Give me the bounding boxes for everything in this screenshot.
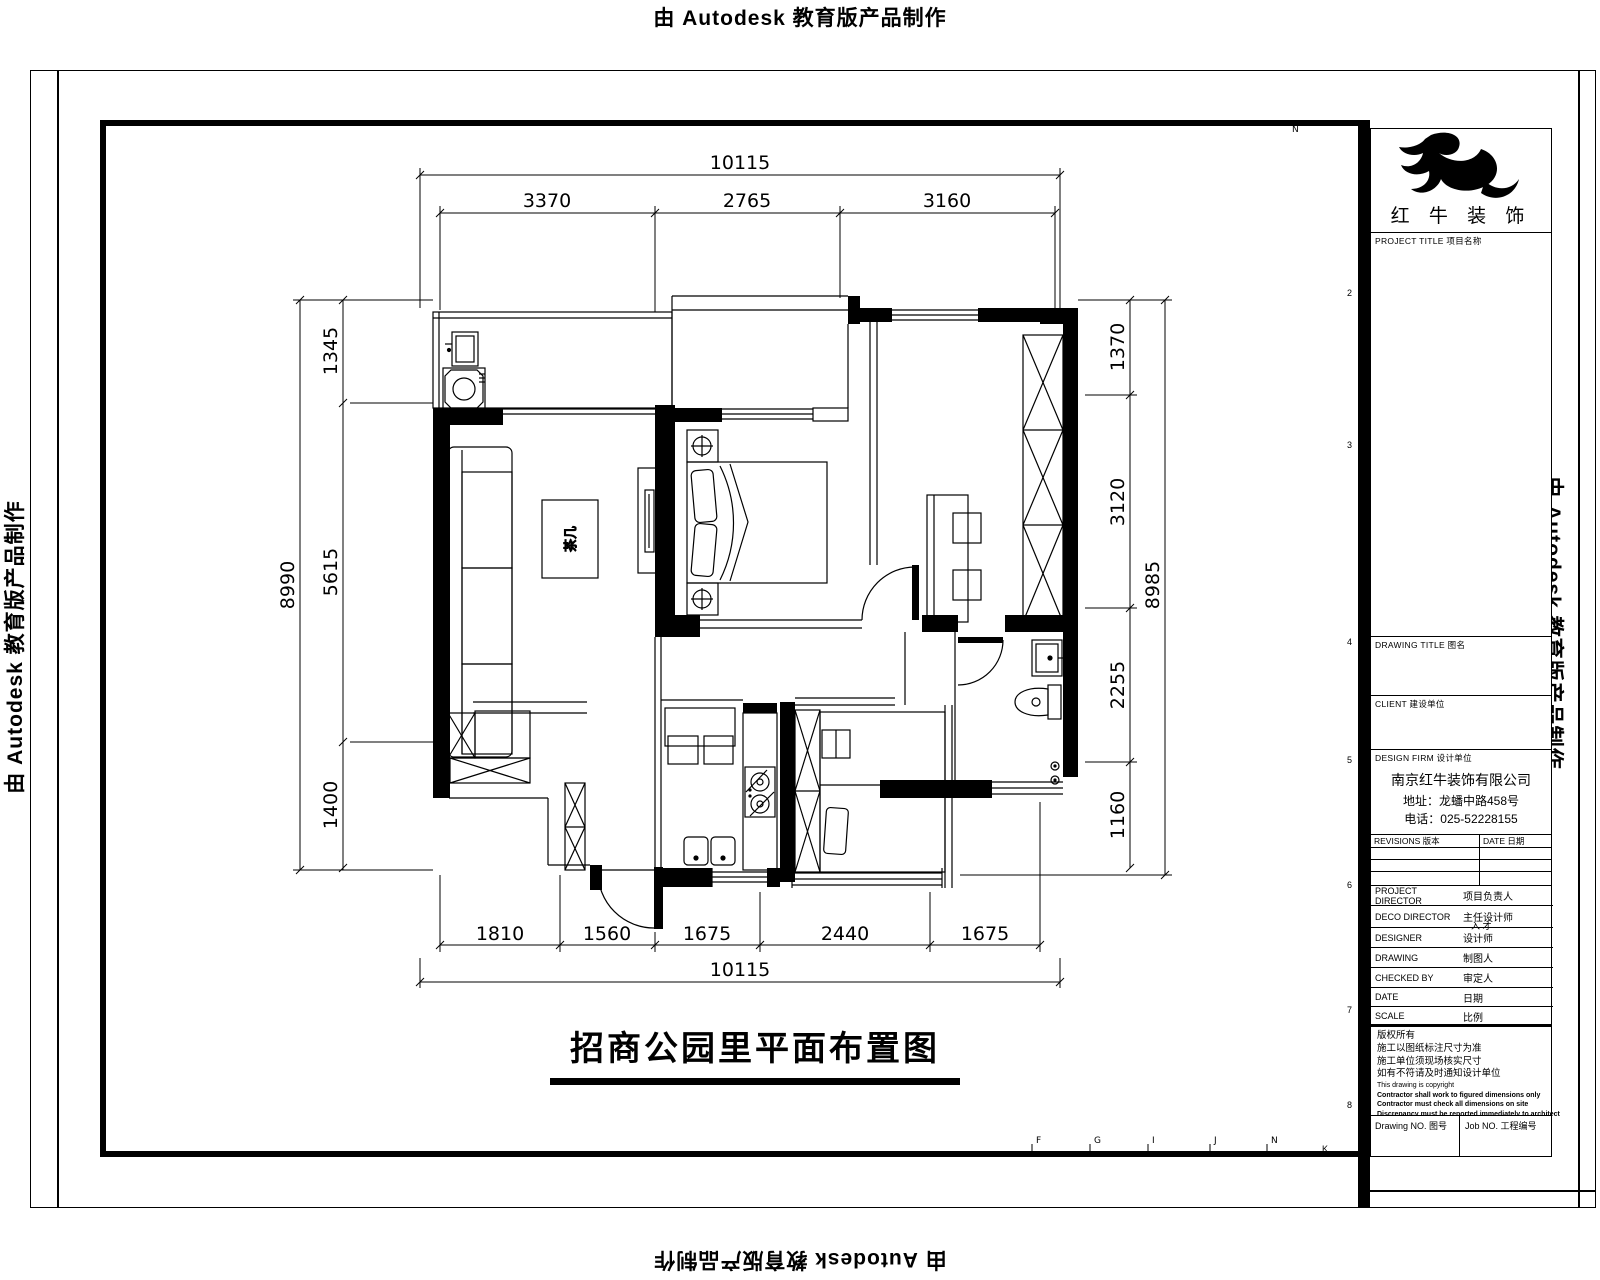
dim-bottom-total: 10115 [710, 959, 770, 981]
row-label-cn: 审定人 [1463, 970, 1493, 985]
walls [433, 296, 1078, 929]
design-firm-label: DESIGN FIRM 设计单位 [1371, 750, 1551, 764]
note-line: 施工单位须现场核实尺寸 [1377, 1056, 1551, 1069]
note-line: 施工以图纸标注尺寸为准 [1377, 1043, 1551, 1056]
dim-bottom-1: 1810 [476, 923, 524, 945]
row-label-en: DESIGNER [1371, 933, 1463, 943]
wardrobe-study [1023, 335, 1063, 622]
row-label-en: PROJECT DIRECTOR [1371, 886, 1463, 906]
numbers-divider [1459, 1116, 1460, 1156]
entry-door-arc [598, 872, 654, 928]
grid-letter: J [1213, 1136, 1217, 1146]
grid-letter: G [1094, 1136, 1101, 1146]
master-bed [687, 430, 827, 615]
design-firm-box: DESIGN FIRM 设计单位 南京红牛装饰有限公司 地址：龙蟠中路458号 … [1370, 749, 1552, 835]
kitchen-sink [684, 837, 735, 865]
sheet-inner-right-line [1578, 70, 1580, 1208]
drawing-title-label: DRAWING TITLE 图名 [1371, 637, 1551, 651]
dim-right-2: 3120 [1107, 478, 1129, 526]
row-label-en: CHECKED BY [1371, 973, 1463, 983]
row-label-cn: 设计师 [1463, 930, 1493, 945]
row-label-en: DATE [1371, 992, 1463, 1002]
note-line: 版权所有 [1377, 1030, 1551, 1043]
revision-row [1371, 860, 1551, 872]
grid-letter: N [1271, 1136, 1278, 1146]
row-label-cn: 日期 [1463, 990, 1483, 1005]
title-block: 红 牛 装 饰 PROJECT TITLE 项目名称 DRAWING TITLE… [1370, 120, 1552, 1208]
notes-box: 版权所有 施工以图纸标注尺寸为准 施工单位须现场核实尺寸 如有不符请及时通知设计… [1370, 1024, 1552, 1116]
revisions-table: REVISIONS 版本 DATE 日期 [1370, 834, 1552, 886]
brand-name: 红 牛 装 饰 [1371, 201, 1551, 228]
dim-bottom-5: 1675 [961, 923, 1009, 945]
grid-letter: F [1036, 1136, 1041, 1146]
wardrobe-bedroom2 [795, 710, 820, 872]
desk [927, 495, 981, 622]
bathroom-door-arc [958, 640, 1003, 685]
titleblock-bar [1358, 120, 1370, 1208]
dim-left-1: 1345 [320, 327, 342, 375]
redniu-logo-icon [1371, 131, 1551, 199]
row-label-cn: 项目负责人 [1463, 888, 1513, 903]
firm-phone: 电话：025-52228155 [1371, 810, 1551, 829]
dim-right-total: 8985 [1142, 561, 1164, 609]
banner-left: 由 Autodesk 教育版产品制作 [0, 447, 29, 847]
row-checked-by: CHECKED BY 审定人 [1371, 968, 1553, 988]
row-label-cn: 制图人 [1463, 950, 1493, 965]
row-scale: SCALE 比例 [1371, 1007, 1553, 1025]
note-line: This drawing is copyright [1377, 1081, 1551, 1090]
toilet [1015, 685, 1061, 719]
storage-cabinets [448, 711, 585, 870]
dim-right-4: 1160 [1107, 791, 1129, 839]
note-line: Contractor shall work to figured dimensi… [1377, 1091, 1551, 1101]
dim-left-total: 8990 [277, 561, 299, 609]
dim-top-2: 2765 [723, 190, 771, 212]
firm-address: 地址：龙蟠中路458号 [1371, 792, 1551, 811]
client-box: CLIENT 建设单位 [1370, 695, 1552, 750]
dining-table [665, 708, 735, 764]
dim-left-2: 5615 [320, 548, 342, 596]
note-line: Contractor must check all dimensions on … [1377, 1100, 1551, 1110]
row-date: DATE 日期 [1371, 988, 1553, 1007]
north-mark: N [1292, 125, 1299, 135]
job-no-label: Job NO. 工程编号 [1465, 1119, 1537, 1132]
stove [745, 767, 775, 817]
dim-top-1: 3370 [523, 190, 571, 212]
project-label: PROJECT TITLE 项目名称 [1371, 233, 1551, 247]
shower-valves [1051, 762, 1059, 784]
revisions-date-label: DATE 日期 [1479, 835, 1524, 847]
dim-bottom-3: 1675 [683, 923, 731, 945]
dim-left-3: 1400 [320, 781, 342, 829]
coffee-table-label: 茶几 [563, 526, 579, 552]
firm-name: 南京红牛装饰有限公司 [1371, 770, 1551, 792]
drawing-title-box: DRAWING TITLE 图名 [1370, 636, 1552, 696]
drawing-no-label: Drawing NO. 图号 [1375, 1119, 1447, 1132]
washing-machine [443, 368, 485, 410]
revisions-label: REVISIONS 版本 [1371, 835, 1479, 847]
plan-title: 招商公园里平面布置图 [570, 1029, 940, 1069]
grid-letter: I [1152, 1136, 1155, 1146]
coffee-table: 茶几 [542, 500, 598, 578]
revision-row [1371, 848, 1551, 860]
project-box: PROJECT TITLE 项目名称 [1370, 232, 1552, 637]
balcony-sink [445, 332, 478, 366]
note-line: 如有不符请及时通知设计单位 [1377, 1068, 1551, 1081]
bedroom-door-arc [862, 567, 915, 620]
dim-bottom-2: 1560 [583, 923, 631, 945]
revisions-divider [1479, 835, 1480, 885]
row-deco-director: DECO DIRECTOR 主任设计师 入 才 [1371, 906, 1553, 928]
row-designer: DESIGNER 设计师 [1371, 928, 1553, 948]
floor-plan: 10115 3370 2765 3160 8990 1345 5615 1400… [100, 120, 1355, 1160]
plan-title-underline [550, 1078, 960, 1085]
client-label: CLIENT 建设单位 [1371, 696, 1551, 710]
row-project-director: PROJECT DIRECTOR 项目负责人 [1371, 886, 1553, 906]
row-label-en: DRAWING [1371, 953, 1463, 963]
logo-box: 红 牛 装 饰 [1370, 128, 1552, 233]
revision-row [1371, 872, 1551, 883]
row-label-cn: 比例 [1463, 1009, 1483, 1024]
dim-right-3: 2255 [1107, 661, 1129, 709]
sheet-inner-left-line [57, 70, 59, 1208]
row-drawing: DRAWING 制图人 [1371, 948, 1553, 968]
dim-top-total: 10115 [710, 152, 770, 174]
banner-top: 由 Autodesk 教育版产品制作 [0, 2, 1600, 32]
row-label-en: DECO DIRECTOR [1371, 912, 1463, 922]
row-label-en: SCALE [1371, 1011, 1463, 1021]
bathroom-basin [1032, 640, 1066, 676]
banner-bottom: 由 Autodesk 教育版产品制作 [0, 1246, 1600, 1276]
dimension-texts: 10115 3370 2765 3160 8990 1345 5615 1400… [277, 152, 1164, 981]
numbers-box: Drawing NO. 图号 Job NO. 工程编号 [1370, 1115, 1552, 1157]
signature-rows: PROJECT DIRECTOR 项目负责人 DECO DIRECTOR 主任设… [1370, 885, 1552, 1026]
dim-right-1: 1370 [1107, 323, 1129, 371]
dim-top-3: 3160 [923, 190, 971, 212]
dim-bottom-4: 2440 [821, 923, 869, 945]
